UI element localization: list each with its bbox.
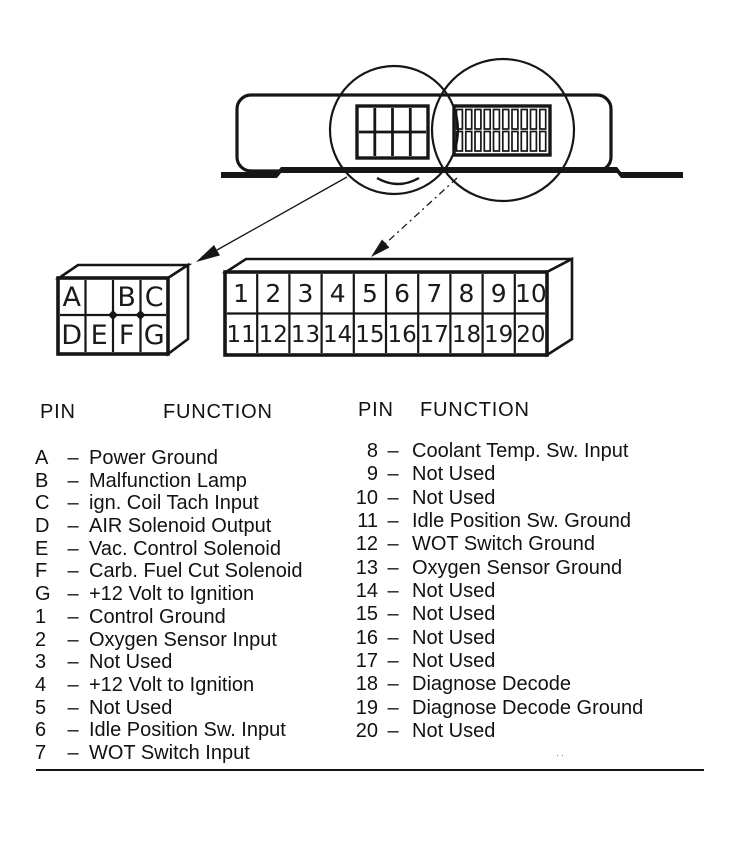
pin-label: 4 bbox=[34, 674, 65, 697]
pin-table-right: PIN FUNCTION 8–Coolant Temp. Sw. Input 9… bbox=[352, 399, 722, 743]
pin-function: +12 Volt to Ignition bbox=[89, 583, 254, 606]
table-row: 12–WOT Switch Ground bbox=[352, 533, 722, 556]
pin-cell-label: 13 bbox=[291, 322, 320, 348]
pin-label: 2 bbox=[34, 629, 65, 652]
ecu-connector-b-grid bbox=[454, 106, 550, 155]
function-header: FUNCTION bbox=[420, 399, 530, 422]
pin-label: 6 bbox=[34, 719, 65, 742]
ecu-connector-a-grid bbox=[357, 106, 428, 158]
pin-dash: – bbox=[386, 557, 400, 580]
pin-dash: – bbox=[386, 673, 400, 696]
pin-cell-label: 2 bbox=[265, 279, 281, 308]
pin-function: Not Used bbox=[412, 487, 495, 510]
pin-dash: – bbox=[386, 533, 400, 556]
pin-header: PIN bbox=[40, 401, 76, 424]
pin-dash: – bbox=[67, 719, 79, 742]
pin-function: Not Used bbox=[89, 651, 172, 674]
pin-function: Coolant Temp. Sw. Input bbox=[412, 440, 628, 463]
pin-header: PIN bbox=[358, 399, 394, 422]
pin-table-left: PIN FUNCTION A–Power Ground B–Malfunctio… bbox=[34, 401, 344, 765]
pin-dash: – bbox=[67, 583, 79, 606]
pin-cell-label: 6 bbox=[394, 279, 410, 308]
pin-label: 12 bbox=[352, 533, 378, 556]
table-row: 2–Oxygen Sensor Input bbox=[34, 629, 344, 652]
table-row: 8–Coolant Temp. Sw. Input bbox=[352, 440, 722, 463]
pin-cell-label: G bbox=[144, 320, 165, 351]
pin-function: Not Used bbox=[412, 463, 495, 486]
table-row: A–Power Ground bbox=[34, 447, 344, 470]
pin-dash: – bbox=[67, 697, 79, 720]
pin-table-left-header: PIN FUNCTION bbox=[34, 401, 344, 447]
pin-label: 3 bbox=[34, 651, 65, 674]
large-connector-top-face bbox=[226, 259, 572, 272]
pin-dash: – bbox=[67, 492, 79, 515]
table-row: 7–WOT Switch Input bbox=[34, 742, 344, 765]
pin-dash: – bbox=[386, 627, 400, 650]
pin-dash: – bbox=[67, 560, 79, 583]
pin-cell-label: C bbox=[145, 282, 164, 313]
pin-function: Power Ground bbox=[89, 447, 218, 470]
pin-function: Idle Position Sw. Ground bbox=[412, 510, 631, 533]
pin-dash: – bbox=[386, 650, 400, 673]
pin-dash: – bbox=[67, 538, 79, 561]
pin-function: Diagnose Decode bbox=[412, 673, 571, 696]
pin-function: +12 Volt to Ignition bbox=[89, 674, 254, 697]
pin-function: WOT Switch Input bbox=[89, 742, 250, 765]
pin-function: Vac. Control Solenoid bbox=[89, 538, 281, 561]
pin-dash: – bbox=[386, 603, 400, 626]
pin-function: WOT Switch Ground bbox=[412, 533, 595, 556]
pin-dash: – bbox=[67, 651, 79, 674]
pin-label: E bbox=[34, 538, 65, 561]
pin-label: 9 bbox=[352, 463, 378, 486]
table-row: 5–Not Used bbox=[34, 697, 344, 720]
pin-label: 19 bbox=[352, 697, 378, 720]
pin-cell-label: 15 bbox=[355, 322, 384, 348]
pin-cell-label: 7 bbox=[426, 279, 442, 308]
pin-label: 17 bbox=[352, 650, 378, 673]
table-row: 4–+12 Volt to Ignition bbox=[34, 674, 344, 697]
pin-label: 1 bbox=[34, 606, 65, 629]
table-row: F–Carb. Fuel Cut Solenoid bbox=[34, 560, 344, 583]
pin-function: Not Used bbox=[412, 650, 495, 673]
table-row: 16–Not Used bbox=[352, 627, 722, 650]
pin-cell-label: 3 bbox=[298, 279, 314, 308]
connector-diagram: A B C D E F G 1 2 bbox=[0, 0, 735, 392]
pin-cell-label: 1 bbox=[233, 279, 249, 308]
pin-label: 18 bbox=[352, 673, 378, 696]
pin-dash: – bbox=[386, 580, 400, 603]
pin-cell-label: F bbox=[119, 320, 135, 351]
table-row: 13–Oxygen Sensor Ground bbox=[352, 557, 722, 580]
pin-label: 14 bbox=[352, 580, 378, 603]
mounting-bracket bbox=[221, 167, 683, 178]
pin-dash: – bbox=[386, 463, 400, 486]
pin-label: 11 bbox=[352, 510, 378, 533]
pin-label: C bbox=[34, 492, 65, 515]
pin-function: Not Used bbox=[412, 720, 495, 743]
pin-dash: – bbox=[67, 447, 79, 470]
pin-function: Not Used bbox=[412, 603, 495, 626]
large-connector-side-face bbox=[547, 259, 572, 355]
table-row: 19–Diagnose Decode Ground bbox=[352, 697, 722, 720]
pin-function: Oxygen Sensor Input bbox=[89, 629, 277, 652]
bracket-bump bbox=[377, 178, 419, 184]
pin-cell-label: 17 bbox=[420, 322, 449, 348]
pin-cell-label: 20 bbox=[516, 322, 545, 348]
pin-dash: – bbox=[386, 720, 400, 743]
pin-cell-label: 10 bbox=[515, 279, 547, 308]
table-row: 15–Not Used bbox=[352, 603, 722, 626]
pin-function: AIR Solenoid Output bbox=[89, 515, 271, 538]
pin-function: Malfunction Lamp bbox=[89, 470, 247, 493]
pin-cell-label: 14 bbox=[323, 322, 352, 348]
pin-function: Diagnose Decode Ground bbox=[412, 697, 643, 720]
pin-dash: – bbox=[67, 606, 79, 629]
pin-dash: – bbox=[67, 470, 79, 493]
pin-dash: – bbox=[386, 487, 400, 510]
pin-function: ign. Coil Tach Input bbox=[89, 492, 259, 515]
table-row: 11–Idle Position Sw. Ground bbox=[352, 510, 722, 533]
pin-cell-label: 18 bbox=[452, 322, 481, 348]
table-row: E–Vac. Control Solenoid bbox=[34, 538, 344, 561]
pin-function: Not Used bbox=[412, 627, 495, 650]
pin-cell-label: E bbox=[91, 320, 108, 351]
pin-cell-label: 12 bbox=[259, 322, 288, 348]
table-row: D–AIR Solenoid Output bbox=[34, 515, 344, 538]
small-connector-side-face bbox=[168, 265, 188, 354]
function-header: FUNCTION bbox=[163, 401, 273, 424]
table-row: 17–Not Used bbox=[352, 650, 722, 673]
ecu-module-drawing bbox=[196, 59, 683, 262]
pin-label: G bbox=[34, 583, 65, 606]
pin-cell-label: B bbox=[117, 282, 136, 313]
pin-function: Oxygen Sensor Ground bbox=[412, 557, 622, 580]
pin-label: 10 bbox=[352, 487, 378, 510]
pin-dash: – bbox=[386, 697, 400, 720]
pin-function: Idle Position Sw. Input bbox=[89, 719, 286, 742]
pin-label: 20 bbox=[352, 720, 378, 743]
pin-cell-label: D bbox=[61, 320, 82, 351]
pin-cell-label: 9 bbox=[491, 279, 507, 308]
pin-dash: – bbox=[67, 515, 79, 538]
pin-label: A bbox=[34, 447, 65, 470]
pin-cell-label: 4 bbox=[330, 279, 346, 308]
pin-cell-label: 19 bbox=[484, 322, 513, 348]
table-row: B–Malfunction Lamp bbox=[34, 470, 344, 493]
table-row: 6–Idle Position Sw. Input bbox=[34, 719, 344, 742]
table-row: 10–Not Used bbox=[352, 487, 722, 510]
pin-cell-label: 16 bbox=[387, 322, 416, 348]
table-row: 20–Not Used bbox=[352, 720, 722, 743]
pin-label: 13 bbox=[352, 557, 378, 580]
pin-cell-label: 5 bbox=[362, 279, 378, 308]
table-row: 9–Not Used bbox=[352, 463, 722, 486]
pin-label: D bbox=[34, 515, 65, 538]
pin-table-right-header: PIN FUNCTION bbox=[352, 399, 722, 440]
large-connector-detail: 1 2 3 4 5 6 7 8 9 10 11 12 13 14 15 16 1… bbox=[225, 259, 572, 355]
pin-function: Not Used bbox=[412, 580, 495, 603]
pin-cell-label: 11 bbox=[226, 322, 255, 348]
table-row: 14–Not Used bbox=[352, 580, 722, 603]
pin-dash: – bbox=[67, 742, 79, 765]
bottom-divider bbox=[36, 769, 704, 771]
pin-label: B bbox=[34, 470, 65, 493]
pin-cell-label: 8 bbox=[459, 279, 475, 308]
pin-label: F bbox=[34, 560, 65, 583]
table-row: 3–Not Used bbox=[34, 651, 344, 674]
pin-dash: – bbox=[67, 629, 79, 652]
pin-label: 7 bbox=[34, 742, 65, 765]
small-connector-detail: A B C D E F G bbox=[58, 265, 188, 354]
pin-label: 5 bbox=[34, 697, 65, 720]
pin-dash: – bbox=[67, 674, 79, 697]
pin-dash: – bbox=[386, 510, 400, 533]
pin-cell-label: A bbox=[62, 282, 81, 313]
pin-function: Carb. Fuel Cut Solenoid bbox=[89, 560, 302, 583]
pin-label: 15 bbox=[352, 603, 378, 626]
leader-arrow-small bbox=[196, 177, 347, 262]
table-row: C–ign. Coil Tach Input bbox=[34, 492, 344, 515]
ecu-pinout-diagram-page: A B C D E F G 1 2 bbox=[0, 0, 735, 848]
pin-label: 16 bbox=[352, 627, 378, 650]
pin-label: 8 bbox=[352, 440, 378, 463]
table-row: 18–Diagnose Decode bbox=[352, 673, 722, 696]
pin-function: Not Used bbox=[89, 697, 172, 720]
table-row: 1–Control Ground bbox=[34, 606, 344, 629]
pin-dash: – bbox=[386, 440, 400, 463]
table-row: G–+12 Volt to Ignition bbox=[34, 583, 344, 606]
pin-function: Control Ground bbox=[89, 606, 226, 629]
scan-noise-dots: ·· bbox=[556, 750, 566, 760]
